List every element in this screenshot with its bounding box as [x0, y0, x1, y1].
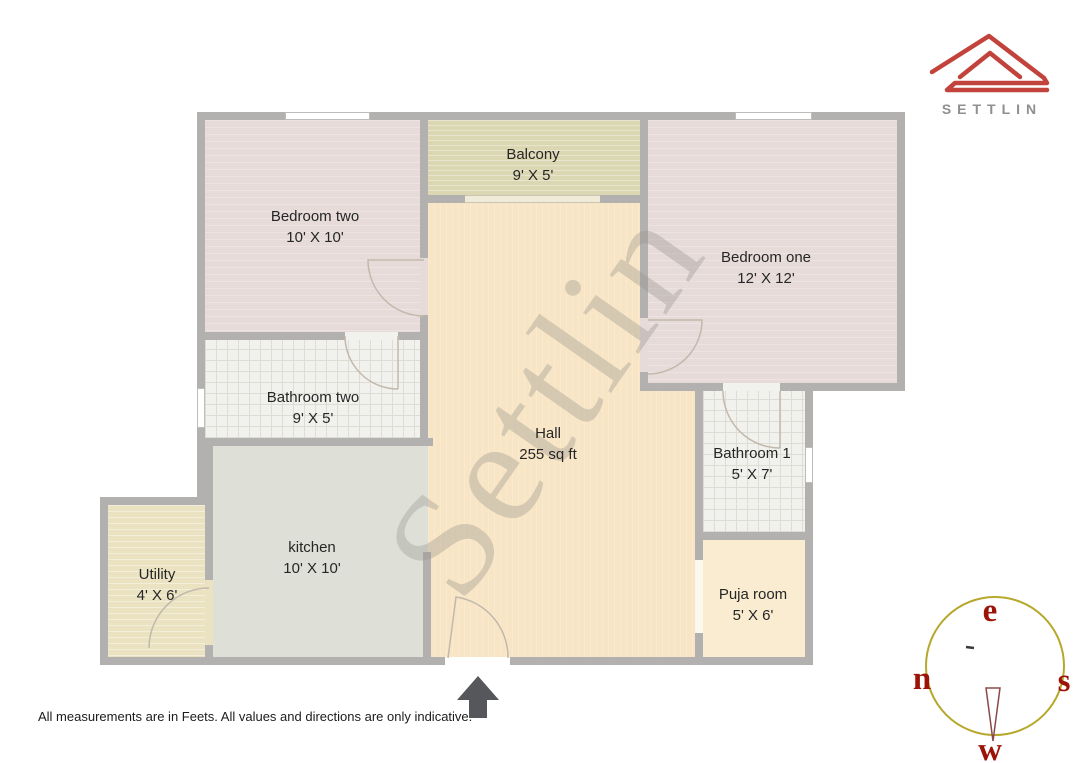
- wall: [197, 438, 433, 446]
- door-opening-bedroom-one: [640, 318, 648, 372]
- window: [285, 112, 370, 120]
- room-label-utility: Utility 4' X 6': [137, 564, 178, 606]
- room-label-hall: Hall 255 sq ft: [519, 423, 577, 465]
- room-label-puja: Puja room 5' X 6': [719, 584, 787, 626]
- room-label-bathroom-1: Bathroom 1 5' X 7': [713, 443, 791, 485]
- room-dims: 9' X 5': [506, 165, 559, 186]
- room-dims: 10' X 10': [283, 558, 340, 579]
- room-dims: 10' X 10': [271, 227, 359, 248]
- footnote: All measurements are in Feets. All value…: [38, 709, 472, 724]
- room-dims: 255 sq ft: [519, 444, 577, 465]
- room-name: Bedroom two: [271, 206, 359, 227]
- door-opening-bathroom-1: [723, 383, 780, 391]
- room-name: kitchen: [283, 537, 340, 558]
- room-name: Bathroom two: [267, 387, 360, 408]
- room-label-bedroom-two: Bedroom two 10' X 10': [271, 206, 359, 248]
- window: [197, 388, 205, 428]
- room-label-bathroom-two: Bathroom two 9' X 5': [267, 387, 360, 429]
- wall: [423, 552, 431, 665]
- room-dims: 12' X 12': [721, 268, 811, 289]
- window: [805, 447, 813, 483]
- room-label-kitchen: kitchen 10' X 10': [283, 537, 340, 579]
- room-name: Puja room: [719, 584, 787, 605]
- wall: [197, 112, 205, 505]
- entrance-opening: [445, 657, 510, 665]
- room-dims: 9' X 5': [267, 408, 360, 429]
- wall: [897, 112, 905, 391]
- room-name: Utility: [137, 564, 178, 585]
- room-name: Hall: [519, 423, 577, 444]
- compass-letter-s: s: [1058, 663, 1071, 699]
- room-dims: 4' X 6': [137, 585, 178, 606]
- room-label-bedroom-one: Bedroom one 12' X 12': [721, 247, 811, 289]
- room-name: Bathroom 1: [713, 443, 791, 464]
- room-name: Bedroom one: [721, 247, 811, 268]
- compass-letter-w: w: [978, 732, 1002, 763]
- door-opening-bedroom-two: [420, 258, 428, 315]
- door-opening-utility: [205, 580, 213, 645]
- wall: [100, 497, 108, 665]
- wall: [100, 497, 205, 505]
- compass: e n s w: [908, 583, 1080, 763]
- passage-balcony-hall: [465, 195, 600, 203]
- room-name: Balcony: [506, 144, 559, 165]
- passage-puja-room: [695, 560, 703, 633]
- compass-letter-e: e: [983, 593, 998, 629]
- wall: [695, 532, 813, 540]
- room-label-balcony: Balcony 9' X 5': [506, 144, 559, 186]
- brand-roof-icon: [922, 22, 1062, 94]
- brand-name: SETTLIN: [922, 101, 1062, 117]
- room-hall-upper: [428, 203, 640, 391]
- compass-letter-n: n: [913, 661, 931, 697]
- room-dims: 5' X 7': [713, 464, 791, 485]
- floor-plan-page: Settlin Bedroom two 10' X 10' Balcony 9'…: [0, 0, 1080, 763]
- window: [735, 112, 812, 120]
- wall: [805, 383, 813, 665]
- brand-logo: SETTLIN: [922, 22, 1062, 117]
- door-opening-bathroom-two: [345, 332, 398, 340]
- compass-center-mark: [966, 647, 974, 648]
- room-dims: 5' X 6': [719, 605, 787, 626]
